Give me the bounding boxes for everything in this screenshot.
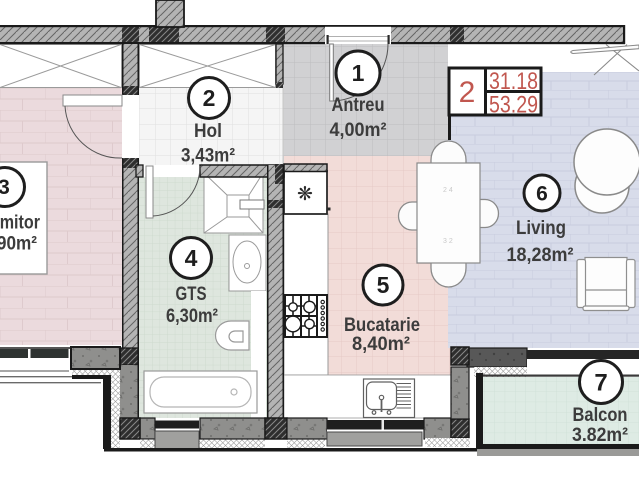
svg-text:3,43m²: 3,43m² xyxy=(181,146,235,167)
svg-text:2: 2 xyxy=(459,76,476,109)
svg-text:4: 4 xyxy=(185,245,198,271)
svg-text:3.82m²: 3.82m² xyxy=(572,425,628,446)
svg-text:18,28m²: 18,28m² xyxy=(507,245,574,266)
svg-text:Dormitor: Dormitor xyxy=(0,212,40,234)
svg-text:Living: Living xyxy=(516,218,566,239)
svg-text:2 4: 2 4 xyxy=(443,187,453,194)
svg-text:4,00m²: 4,00m² xyxy=(330,120,387,141)
svg-text:❋: ❋ xyxy=(297,184,313,205)
svg-text:7: 7 xyxy=(594,370,607,397)
svg-text:3: 3 xyxy=(0,176,10,199)
svg-text:6,30m²: 6,30m² xyxy=(166,306,218,327)
svg-text:GTS: GTS xyxy=(176,284,207,305)
svg-text:3 2: 3 2 xyxy=(443,238,453,245)
svg-text:8,40m²: 8,40m² xyxy=(352,334,410,355)
svg-text:Bucatarie: Bucatarie xyxy=(344,315,420,336)
svg-text:Hol: Hol xyxy=(194,121,222,142)
svg-text:6: 6 xyxy=(536,183,548,206)
svg-text:5: 5 xyxy=(377,272,390,298)
svg-text:13,90m²: 13,90m² xyxy=(0,233,37,255)
svg-text:Balcon: Balcon xyxy=(573,405,628,426)
svg-text:53.29: 53.29 xyxy=(489,92,538,119)
svg-text:2: 2 xyxy=(203,85,216,111)
svg-text:Antreu: Antreu xyxy=(332,95,385,116)
svg-text:1: 1 xyxy=(352,60,365,86)
